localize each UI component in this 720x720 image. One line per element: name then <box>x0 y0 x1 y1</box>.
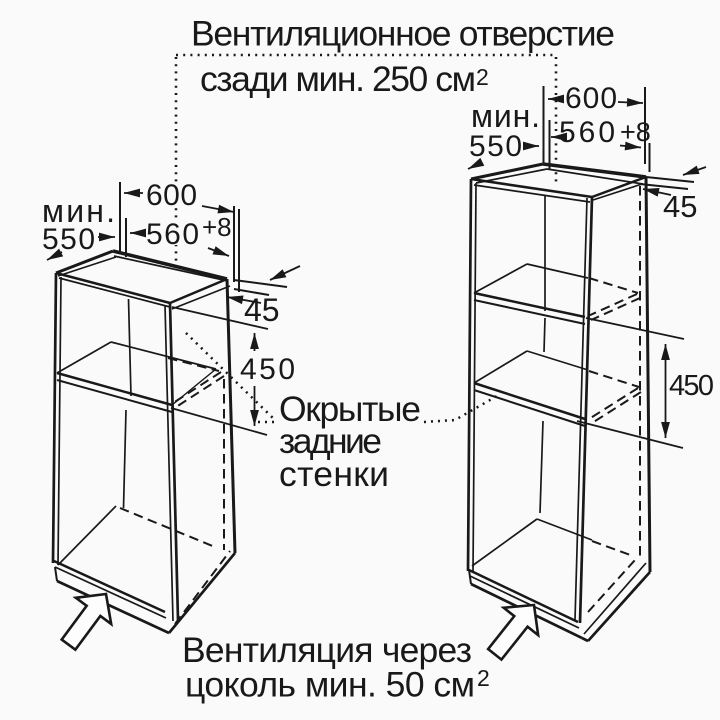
svg-text:560: 560 <box>559 116 615 149</box>
svg-text:550: 550 <box>42 223 95 256</box>
svg-text:450: 450 <box>669 370 714 402</box>
svg-text:+8: +8 <box>202 212 232 242</box>
svg-text:550: 550 <box>469 130 522 163</box>
svg-text:45: 45 <box>663 189 697 224</box>
svg-text:2: 2 <box>476 64 489 90</box>
svg-text:цоколь мин. 50 см: цоколь мин. 50 см <box>185 665 475 705</box>
svg-text:600: 600 <box>565 82 617 115</box>
svg-text:45: 45 <box>244 292 280 328</box>
svg-text:2: 2 <box>477 665 490 691</box>
svg-text:560: 560 <box>146 218 199 251</box>
svg-text:стенки: стенки <box>279 454 389 494</box>
svg-text:сзади мин. 250 см: сзади мин. 250 см <box>200 59 476 99</box>
svg-text:600: 600 <box>146 179 197 212</box>
svg-text:+8: +8 <box>620 117 651 147</box>
svg-text:450: 450 <box>240 353 295 386</box>
svg-text:мин.: мин. <box>471 98 540 134</box>
svg-text:Вентиляционное отверстие: Вентиляционное отверстие <box>191 14 615 54</box>
